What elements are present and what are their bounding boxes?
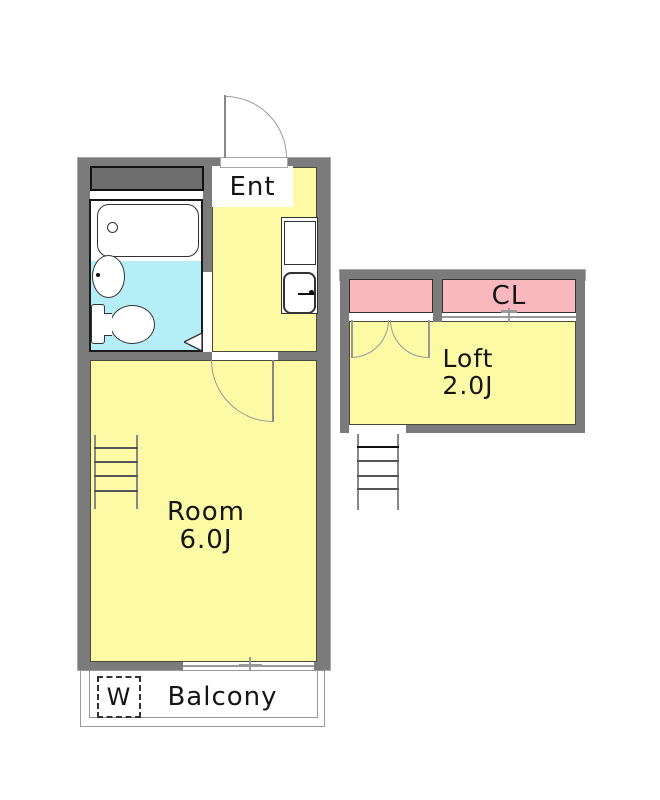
closet-label-text: CL (492, 281, 527, 311)
loft-ladder-rung (357, 446, 399, 448)
balcony-label: Balcony (150, 682, 295, 712)
loft-label-text: Loft (443, 345, 494, 372)
storage-block (90, 166, 204, 191)
closet-divider-wall (433, 279, 442, 322)
kitchen-faucet-dot (309, 290, 314, 295)
loft-size-text: 2.0J (442, 372, 493, 399)
loft-ladder-rung (357, 460, 399, 462)
room-label: Room 6.0J (146, 498, 266, 554)
entrance-label-text: Ent (229, 172, 275, 202)
room-label-text: Room (167, 498, 245, 526)
room-ladder-rung (94, 490, 138, 492)
loft-wall-bottom (406, 425, 585, 433)
bathroom-entrance-wall (203, 166, 212, 272)
room-ladder-rung (94, 461, 138, 463)
loft-wall-left (340, 270, 349, 433)
entrance-door-swing-icon (225, 96, 287, 158)
entrance-label: Ent (212, 166, 293, 207)
sliding-door-bar (501, 310, 517, 313)
bathroom-door-track (203, 272, 212, 352)
loft-ladder-rung (357, 475, 399, 477)
toilet-tank-icon (91, 304, 105, 344)
room-ladder-rung (94, 475, 138, 477)
loft-label: Loft 2.0J (420, 344, 516, 400)
washer-label-text: W (107, 683, 132, 711)
room-ladder-rung (94, 447, 138, 449)
sink-faucet-dot (96, 273, 100, 277)
loft-ladder-rung (357, 488, 399, 490)
loft-wall-right (576, 270, 585, 433)
bathroom-door-arrow-icon (184, 333, 203, 352)
floor-plan: Ent Room 6.0J W Balcony CL (0, 0, 660, 800)
room-size-text: 6.0J (179, 526, 232, 554)
balcony-label-text: Balcony (167, 682, 277, 712)
closet-left-box (349, 279, 433, 313)
kitchen-counter-icon (284, 221, 316, 265)
window-center-bar (239, 664, 262, 667)
toilet-seat-joint (104, 313, 112, 336)
entrance-door-threshold (220, 157, 288, 168)
bathtub-drain-icon (107, 222, 118, 233)
toilet-bowl-icon (110, 305, 155, 344)
washer-space-icon: W (97, 676, 141, 718)
room-door-opening (212, 352, 278, 360)
